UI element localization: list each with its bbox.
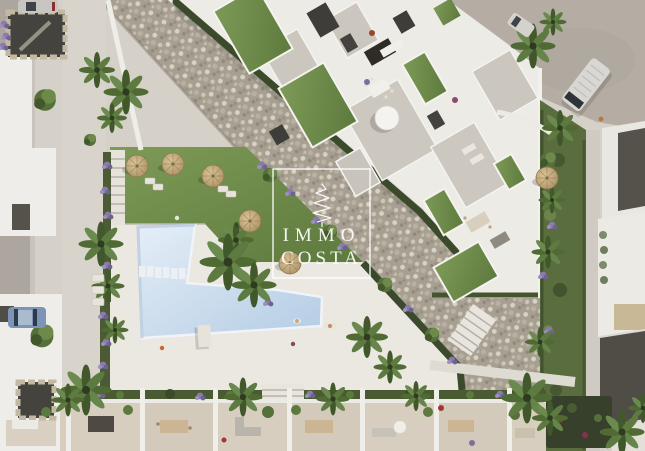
pool-platform xyxy=(197,325,212,348)
watermark-text-line2: COSTA xyxy=(281,248,362,269)
aerial-site-render: IMMO COSTA xyxy=(0,0,645,451)
white-parasol xyxy=(375,106,399,130)
parked-car-silver xyxy=(18,0,58,13)
dark-roof xyxy=(618,128,645,211)
stairs-left xyxy=(110,150,125,225)
parked-car-blue xyxy=(8,307,46,328)
gravel-patch xyxy=(8,12,65,57)
render-canvas: IMMO COSTA xyxy=(0,0,645,451)
red-plant xyxy=(369,30,375,36)
watermark-text-line1: IMMO xyxy=(283,225,361,246)
swimmer xyxy=(295,319,299,323)
